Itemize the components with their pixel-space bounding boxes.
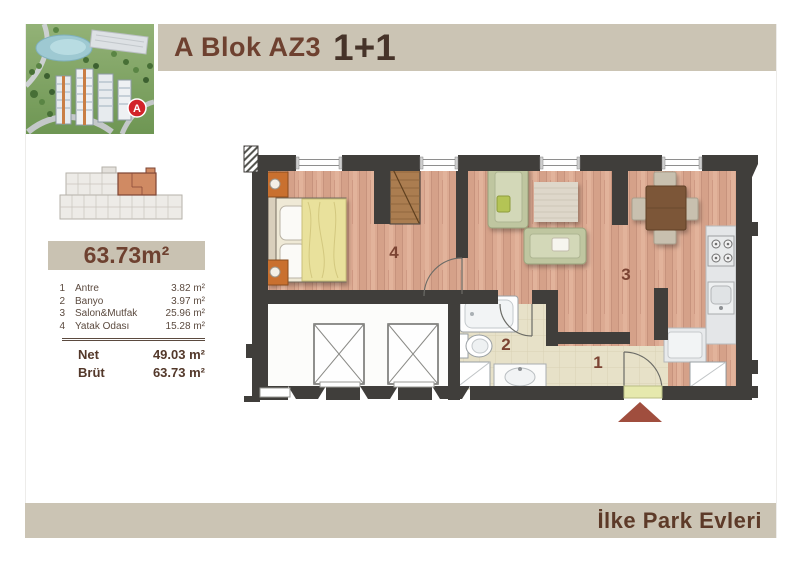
toilet-bowl bbox=[472, 339, 488, 353]
unit-type-title: 1+1 bbox=[333, 29, 396, 66]
counter-top bbox=[668, 332, 702, 358]
total-row-brut: Brüt 63.73 m² bbox=[62, 364, 205, 382]
aerial-photo-graphic: A bbox=[26, 24, 154, 134]
key-plan-highlight-notch bbox=[146, 168, 155, 173]
table-row: 1 Antre 3.82 m² bbox=[55, 283, 205, 296]
key-plan-core bbox=[102, 167, 116, 173]
wardrobe bbox=[390, 164, 420, 224]
shower-drain bbox=[470, 312, 474, 316]
room-area: 3.97 m² bbox=[171, 296, 205, 309]
dining-chair bbox=[654, 230, 676, 244]
table-row: 3 Salon&Mutfak 25.96 m² bbox=[55, 308, 205, 321]
structural-column bbox=[244, 146, 258, 172]
pond-inner bbox=[50, 39, 86, 55]
room-name: Antre bbox=[75, 283, 99, 296]
block-title: A Blok AZ3 bbox=[174, 32, 321, 63]
brand-title: İlke Park Evleri bbox=[597, 508, 762, 534]
sofa-pillow bbox=[552, 238, 569, 251]
key-plan-highlight bbox=[118, 173, 156, 195]
entrance-sill bbox=[624, 386, 662, 398]
area-box: 63.73m² bbox=[48, 241, 205, 270]
page-root: { "header": { "block_title": "A Blok AZ3… bbox=[0, 0, 800, 565]
window bbox=[540, 155, 580, 171]
lobby-step bbox=[260, 388, 290, 397]
table-row: 2 Banyo 3.97 m² bbox=[55, 296, 205, 309]
room-name: Banyo bbox=[75, 296, 103, 309]
window bbox=[662, 155, 702, 171]
sink-basin bbox=[711, 286, 731, 304]
sofa-cushion bbox=[497, 196, 510, 212]
window bbox=[296, 155, 342, 171]
floor-plan-graphic: 4 3 2 1 bbox=[238, 140, 766, 428]
total-area-label: 63.73m² bbox=[84, 242, 170, 269]
room-label-bedroom: 4 bbox=[389, 243, 399, 262]
row-number: 2 bbox=[55, 296, 65, 309]
footer-band: İlke Park Evleri bbox=[25, 503, 776, 538]
lamp bbox=[270, 267, 280, 277]
room-area: 25.96 m² bbox=[166, 308, 205, 321]
net-value: 49.03 m² bbox=[153, 346, 205, 364]
dining-chair bbox=[632, 198, 646, 220]
lamp bbox=[270, 179, 280, 189]
header-band: A Blok AZ3 1+1 bbox=[158, 24, 776, 71]
room-table: 1 Antre 3.82 m² 2 Banyo 3.97 m² 3 Salon&… bbox=[55, 283, 205, 382]
row-number: 4 bbox=[55, 321, 65, 334]
floor-plan: 4 3 2 1 bbox=[238, 140, 766, 428]
net-label: Net bbox=[62, 346, 99, 364]
entrance-arrow bbox=[618, 402, 662, 422]
room-area: 3.82 m² bbox=[171, 283, 205, 296]
room-label-entry: 1 bbox=[593, 353, 602, 372]
brut-label: Brüt bbox=[62, 364, 105, 382]
basin-faucet bbox=[518, 367, 522, 371]
room-area: 15.28 m² bbox=[166, 321, 205, 334]
total-row-net: Net 49.03 m² bbox=[62, 346, 205, 364]
dining-chair bbox=[654, 172, 676, 186]
project-aerial-photo: A bbox=[26, 24, 154, 134]
faucet bbox=[719, 306, 723, 310]
room-name: Salon&Mutfak bbox=[75, 308, 137, 321]
totals-section: Net 49.03 m² Brüt 63.73 m² bbox=[62, 338, 205, 382]
room-label-living: 3 bbox=[621, 265, 630, 284]
room-label-bath: 2 bbox=[501, 335, 510, 354]
room-name: Yatak Odası bbox=[75, 321, 129, 334]
brut-value: 63.73 m² bbox=[153, 364, 205, 382]
key-plan bbox=[58, 163, 190, 227]
table-row: 4 Yatak Odası 15.28 m² bbox=[55, 321, 205, 334]
key-plan-graphic bbox=[58, 163, 190, 227]
row-number: 3 bbox=[55, 308, 65, 321]
window bbox=[420, 155, 458, 171]
elevator-door bbox=[394, 382, 434, 387]
location-badge-letter: A bbox=[133, 103, 141, 115]
elevator-door bbox=[320, 382, 360, 387]
row-number: 1 bbox=[55, 283, 65, 296]
